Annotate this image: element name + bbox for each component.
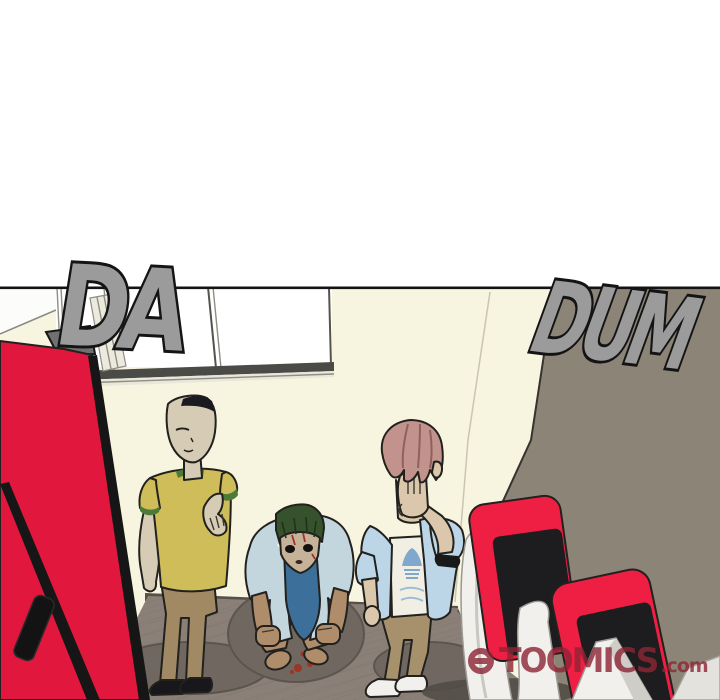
ear <box>432 462 442 478</box>
black-cuff <box>435 554 460 568</box>
toomics-domain-text: .com <box>660 655 707 677</box>
comic-panel-art: DA DUM <box>0 0 720 700</box>
right-shoe <box>180 678 212 693</box>
comic-page: DA DUM TOOMICS .com <box>0 0 720 700</box>
sneaker <box>395 676 427 692</box>
toomics-brand-text: TOOMICS <box>499 641 657 681</box>
toomics-watermark: TOOMICS .com <box>466 641 708 680</box>
toomics-logo-icon <box>466 646 496 676</box>
